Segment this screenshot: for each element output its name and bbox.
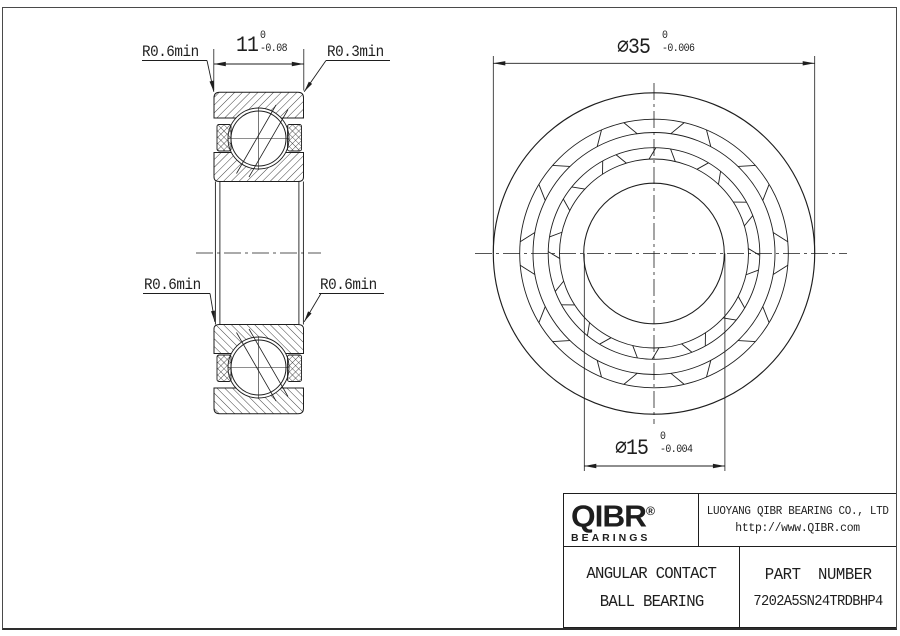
width-dimension-tolerance: 0 -0.08 xyxy=(260,30,287,55)
radius-label-top-right: R0.3min xyxy=(327,43,384,61)
product-name-line1: ANGULAR CONTACT xyxy=(587,564,717,583)
qibr-logo: QIBR® xyxy=(571,496,701,531)
part-number-label: PART NUMBER xyxy=(765,565,872,584)
registered-mark: ® xyxy=(646,504,655,518)
product-name-line2: BALL BEARING xyxy=(600,592,704,611)
od-dimension-value: ⌀35 xyxy=(617,34,650,60)
bore-dimension-value: ⌀15 xyxy=(615,435,648,461)
radius-label-bottom-right: R0.6min xyxy=(320,276,377,294)
logo-subtitle: BEARINGS xyxy=(571,532,698,544)
bearing-section-upper-half xyxy=(214,92,304,181)
seal-left xyxy=(217,125,231,152)
part-number-cell: PART NUMBER 7202A5SN24TRDBHP4 xyxy=(740,547,896,627)
title-block: QIBR® BEARINGS LUOYANG QIBR BEARING CO.,… xyxy=(563,493,897,628)
front-view xyxy=(475,83,847,424)
company-name: LUOYANG QIBR BEARING CO., LTD xyxy=(707,505,889,518)
product-cell: ANGULAR CONTACT BALL BEARING xyxy=(564,547,740,627)
bearing-section-lower-half xyxy=(214,325,304,414)
part-number-value: 7202A5SN24TRDBHP4 xyxy=(753,594,882,610)
width-dimension-value: 11 xyxy=(236,33,258,58)
company-cell: LUOYANG QIBR BEARING CO., LTD http://www… xyxy=(699,494,896,546)
engineering-drawing-page: R0.6min R0.3min R0.6min R0.6min 11 0 -0.… xyxy=(0,0,900,636)
radius-label-top-left: R0.6min xyxy=(142,43,199,61)
company-url: http://www.QIBR.com xyxy=(735,521,860,535)
od-dimension-tolerance: 0 -0.006 xyxy=(662,30,694,55)
side-view-cross-section xyxy=(196,92,321,413)
bore-dimension-tolerance: 0 -0.004 xyxy=(660,431,692,456)
seal-right xyxy=(288,125,302,152)
radius-label-bottom-left: R0.6min xyxy=(144,276,201,294)
logo-cell: QIBR® BEARINGS xyxy=(564,494,699,546)
